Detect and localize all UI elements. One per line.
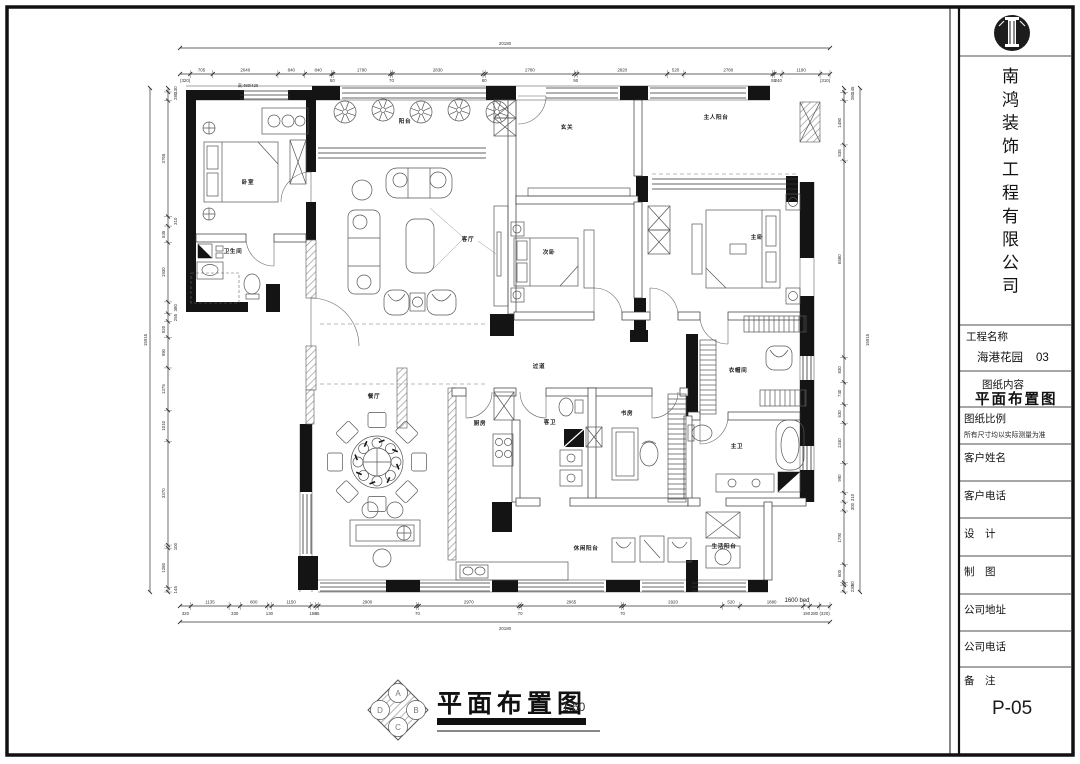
- annotation-text: 1600 bed: [784, 598, 809, 604]
- title-underline-bar: [437, 718, 586, 725]
- stamp-letter-d: D: [377, 706, 383, 715]
- annotation-text: 高:480/420: [238, 82, 259, 89]
- dim-value: 990: [161, 348, 166, 356]
- dim-value: 2780: [723, 68, 733, 73]
- dim-value: 3765: [161, 153, 166, 163]
- dim-value: 830: [837, 366, 842, 374]
- dim-value: 840: [314, 68, 322, 73]
- dim-value: 310: [850, 493, 855, 501]
- dim-value: 130: [173, 86, 178, 94]
- scale-note: 所有尺寸均以实际测量为准: [964, 430, 1046, 439]
- dim-value: 255: [173, 313, 178, 321]
- dim-value: 380: [173, 304, 178, 312]
- dim-value: 240: [775, 78, 783, 83]
- dim-value: 280: [173, 92, 178, 100]
- company-phone-label: 公司电话: [964, 640, 1006, 653]
- dim-value: 2970: [464, 600, 474, 605]
- dim-value: 2820: [617, 68, 627, 73]
- dim-value: 600: [837, 569, 842, 577]
- remarks-label: 备 注: [964, 674, 996, 687]
- dim-value: 15915: [865, 333, 870, 346]
- dim-value: 145: [173, 586, 178, 594]
- dim-value: 320: [182, 611, 190, 616]
- dim-value: 705: [198, 68, 206, 73]
- sheet-frame: [7, 7, 1073, 755]
- dim-value: 50: [330, 78, 335, 83]
- company-name-char: 工: [1002, 160, 1020, 179]
- dim-value: 70: [620, 611, 625, 616]
- room-label: 阳台: [399, 117, 411, 125]
- dim-value: (310): [820, 78, 831, 83]
- dim-value: 990: [837, 474, 842, 482]
- room-label: 生活阳台: [712, 542, 737, 550]
- dim-value: 520: [161, 325, 166, 333]
- project-code: 03: [1036, 352, 1049, 364]
- room-label: 衣帽间: [729, 366, 748, 374]
- dim-value: 310: [173, 217, 178, 225]
- stamp-letter-a: A: [395, 689, 401, 698]
- drawing-title-scale: 1:60: [562, 700, 586, 714]
- project-name-value: 海港花园: [977, 350, 1023, 364]
- company-name-char: 鸿: [1002, 90, 1020, 109]
- dim-value: 190: [803, 611, 811, 616]
- company-name-char: 公: [1002, 253, 1020, 272]
- dim-value: 70: [415, 611, 420, 616]
- dim-value: 535: [837, 149, 842, 157]
- dim-value: 1790: [357, 68, 367, 73]
- dim-value: 800: [250, 600, 258, 605]
- dim-value: 70: [518, 611, 523, 616]
- company-name-char: 装: [1002, 114, 1020, 133]
- dim-value: 6580: [837, 254, 842, 264]
- drawing-content-label: 图纸内容: [982, 378, 1024, 391]
- dim-value: 1480: [837, 117, 842, 127]
- dim-value: 1150: [286, 600, 296, 605]
- dim-value: 2900: [362, 600, 372, 605]
- company-name-char: 南: [1002, 67, 1020, 86]
- dim-value: 130: [266, 611, 274, 616]
- company-name-char: 司: [1002, 277, 1020, 296]
- dim-value: 20180: [499, 626, 512, 631]
- dim-value: (320): [819, 611, 830, 616]
- company-address-label: 公司地址: [964, 603, 1006, 616]
- scale-label: 图纸比例: [964, 412, 1006, 425]
- room-label: 卫生间: [224, 247, 243, 255]
- dim-value: 840: [288, 68, 296, 73]
- dim-value: 330: [231, 611, 239, 616]
- dim-value: 70: [389, 78, 394, 83]
- dim-value: 520: [727, 600, 735, 605]
- dim-value: 230: [850, 584, 855, 592]
- dim-value: 280: [850, 92, 855, 100]
- room-label: 休闲阳台: [573, 544, 599, 552]
- stamp-letter-c: C: [395, 723, 401, 732]
- dim-value: 15915: [143, 333, 148, 346]
- drawing-sheet: 南鸿装饰工程有限公司 工程名称 海港花园 03 图纸内容 平面布置图 图纸比例 …: [0, 0, 1080, 764]
- room-label: 主卧: [751, 233, 763, 241]
- dim-value: 740: [837, 389, 842, 397]
- room-label: 主人阳台: [704, 113, 729, 121]
- project-name-label: 工程名称: [966, 330, 1008, 343]
- dim-value: 145: [850, 86, 855, 94]
- dim-value: 535: [161, 230, 166, 238]
- company-name-char: 饰: [1002, 137, 1020, 156]
- dim-value: 100: [173, 542, 178, 550]
- dim-value: 2040: [240, 68, 250, 73]
- dim-value: 3370: [161, 488, 166, 498]
- dim-value: 2920: [668, 600, 678, 605]
- floorplan-sheet-svg: 南鸿装饰工程有限公司 工程名称 海港花园 03 图纸内容 平面布置图 图纸比例 …: [0, 0, 1080, 764]
- dim-value: 1790: [837, 532, 842, 542]
- client-phone-label: 客户电话: [964, 489, 1006, 502]
- dim-value: 1010: [161, 420, 166, 430]
- dim-value: 90: [573, 78, 578, 83]
- dim-value: 1280: [161, 562, 166, 572]
- company-logo-icon: [994, 15, 1030, 51]
- room-label: 餐厅: [367, 392, 380, 400]
- company-name-char: 程: [1002, 184, 1020, 203]
- dim-value: 1930: [161, 267, 166, 277]
- dim-value: 85: [315, 611, 320, 616]
- dim-value: 2965: [566, 600, 576, 605]
- dim-value: 1880: [767, 600, 777, 605]
- room-label: 主卫: [731, 442, 743, 450]
- dim-value: 1375: [161, 384, 166, 394]
- company-name-char: 限: [1002, 230, 1020, 249]
- dim-value: 1190: [796, 68, 806, 73]
- dim-value: 20180: [499, 41, 512, 46]
- room-label: 卧室: [242, 178, 254, 186]
- dim-value: 280: [811, 611, 819, 616]
- sheet-number: P-05: [992, 698, 1032, 719]
- room-label: 次卧: [543, 248, 555, 256]
- room-label: 客厅: [461, 235, 474, 243]
- room-label: 厨房: [474, 419, 486, 427]
- room-label: 客卫: [543, 418, 556, 426]
- room-label: 书房: [621, 409, 633, 417]
- dim-value: 1340: [837, 438, 842, 448]
- drafter-label: 制 图: [964, 565, 996, 578]
- company-name-char: 有: [1002, 207, 1020, 226]
- room-label: 过道: [533, 362, 545, 370]
- dim-value: (320): [180, 78, 191, 83]
- dim-value: 630: [837, 410, 842, 418]
- client-name-label: 客户姓名: [964, 451, 1006, 464]
- stamp-letter-b: B: [413, 706, 418, 715]
- dim-value: 2780: [525, 68, 535, 73]
- dim-value: 2830: [433, 68, 443, 73]
- room-label: 玄关: [561, 123, 573, 131]
- dim-value: 80: [482, 78, 487, 83]
- drawing-content-value: 平面布置图: [975, 390, 1058, 408]
- designer-label: 设 计: [964, 527, 996, 540]
- dim-value: 1135: [205, 600, 215, 605]
- dim-value: 300: [850, 502, 855, 510]
- dim-value: 520: [672, 68, 680, 73]
